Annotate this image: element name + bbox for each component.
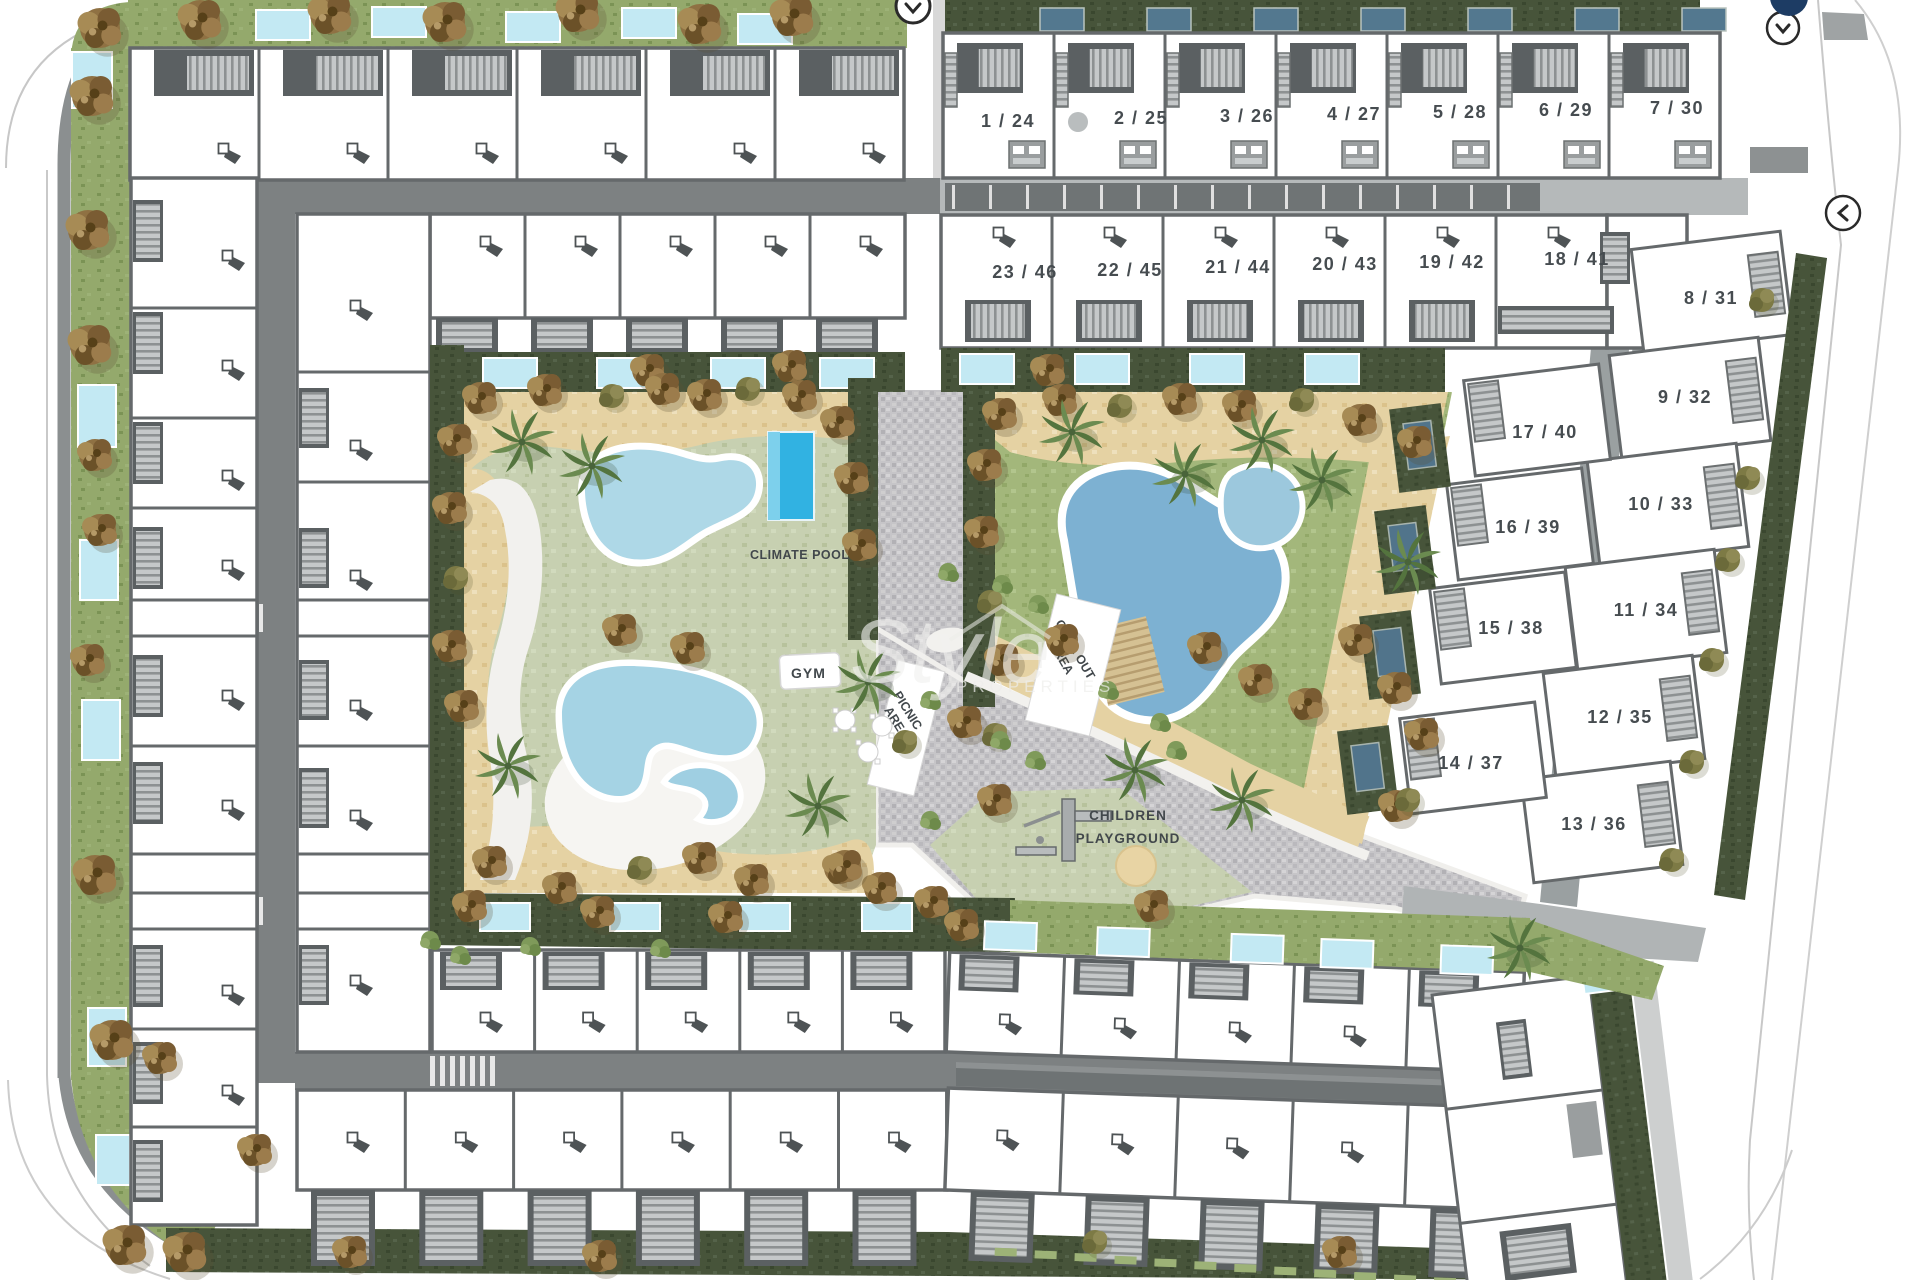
svg-text:2 / 25: 2 / 25 [1114, 108, 1168, 128]
svg-text:8 / 31: 8 / 31 [1684, 288, 1738, 308]
svg-text:10 / 33: 10 / 33 [1628, 494, 1694, 514]
svg-text:1 / 24: 1 / 24 [981, 111, 1035, 131]
svg-text:21 / 44: 21 / 44 [1205, 257, 1271, 277]
svg-text:6 / 29: 6 / 29 [1539, 100, 1593, 120]
svg-text:19 / 42: 19 / 42 [1419, 252, 1485, 272]
svg-text:GYM: GYM [791, 665, 826, 681]
svg-text:PROPERTIES: PROPERTIES [956, 677, 1115, 696]
svg-text:16 / 39: 16 / 39 [1495, 517, 1561, 537]
svg-text:20 / 43: 20 / 43 [1312, 254, 1378, 274]
svg-text:14 / 37: 14 / 37 [1438, 753, 1504, 773]
svg-text:17 / 40: 17 / 40 [1512, 422, 1578, 442]
svg-text:13 / 36: 13 / 36 [1561, 814, 1627, 834]
svg-text:7 / 30: 7 / 30 [1650, 98, 1704, 118]
svg-text:5 / 28: 5 / 28 [1433, 102, 1487, 122]
svg-text:22 / 45: 22 / 45 [1097, 260, 1163, 280]
svg-text:11 / 34: 11 / 34 [1614, 600, 1679, 620]
svg-text:3 / 26: 3 / 26 [1220, 106, 1274, 126]
svg-text:12 / 35: 12 / 35 [1587, 707, 1653, 727]
svg-text:9 / 32: 9 / 32 [1658, 387, 1712, 407]
svg-text:18 / 41: 18 / 41 [1544, 249, 1610, 269]
svg-text:23 / 46: 23 / 46 [992, 262, 1058, 282]
svg-text:15 / 38: 15 / 38 [1478, 618, 1544, 638]
svg-text:CLIMATE POOL: CLIMATE POOL [750, 548, 850, 562]
svg-text:PLAYGROUND: PLAYGROUND [1076, 831, 1181, 846]
svg-text:CHILDREN: CHILDREN [1089, 808, 1167, 823]
svg-text:4 / 27: 4 / 27 [1327, 104, 1381, 124]
